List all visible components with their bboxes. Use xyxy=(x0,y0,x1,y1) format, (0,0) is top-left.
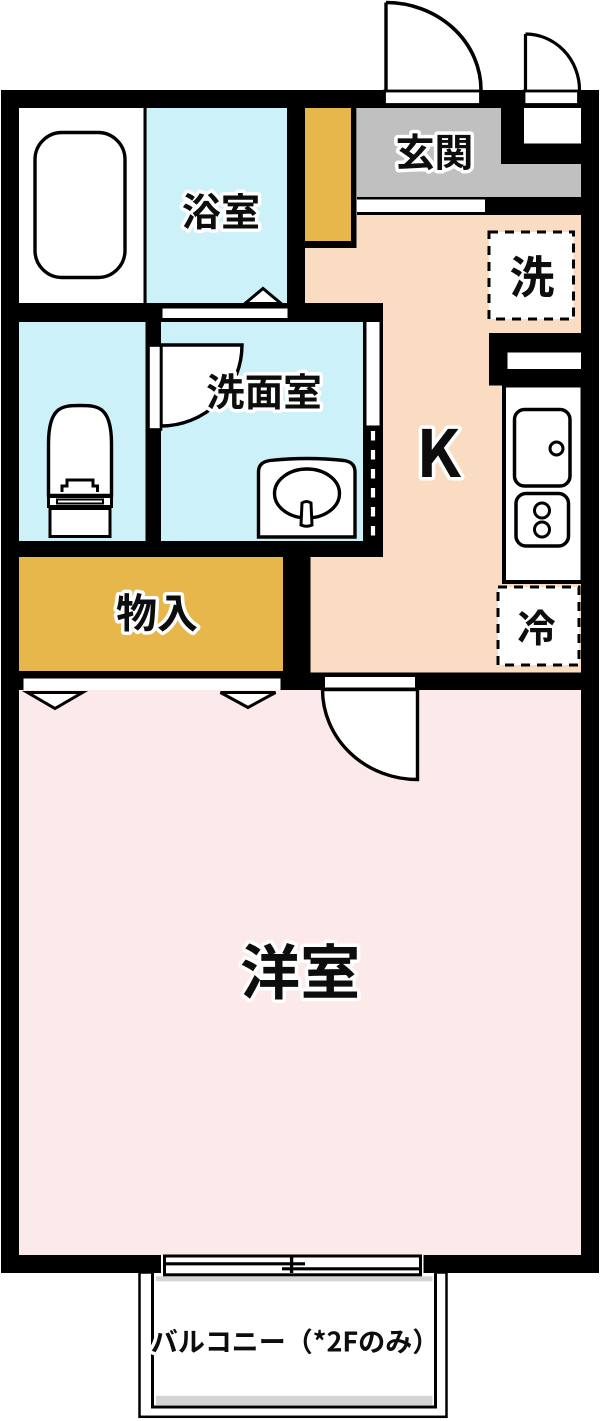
svg-text:バルコニー（*2Fのみ）: バルコニー（*2Fのみ） xyxy=(151,1321,439,1360)
svg-text:洗面室: 洗面室 xyxy=(206,362,322,418)
svg-text:K: K xyxy=(416,402,461,496)
svg-text:物入: 物入 xyxy=(116,580,198,640)
svg-text:玄関: 玄関 xyxy=(395,123,473,179)
svg-text:浴室: 浴室 xyxy=(182,182,260,238)
svg-text:洗: 洗 xyxy=(509,242,554,307)
svg-text:冷: 冷 xyxy=(517,598,556,654)
svg-text:洋室: 洋室 xyxy=(240,925,360,1012)
